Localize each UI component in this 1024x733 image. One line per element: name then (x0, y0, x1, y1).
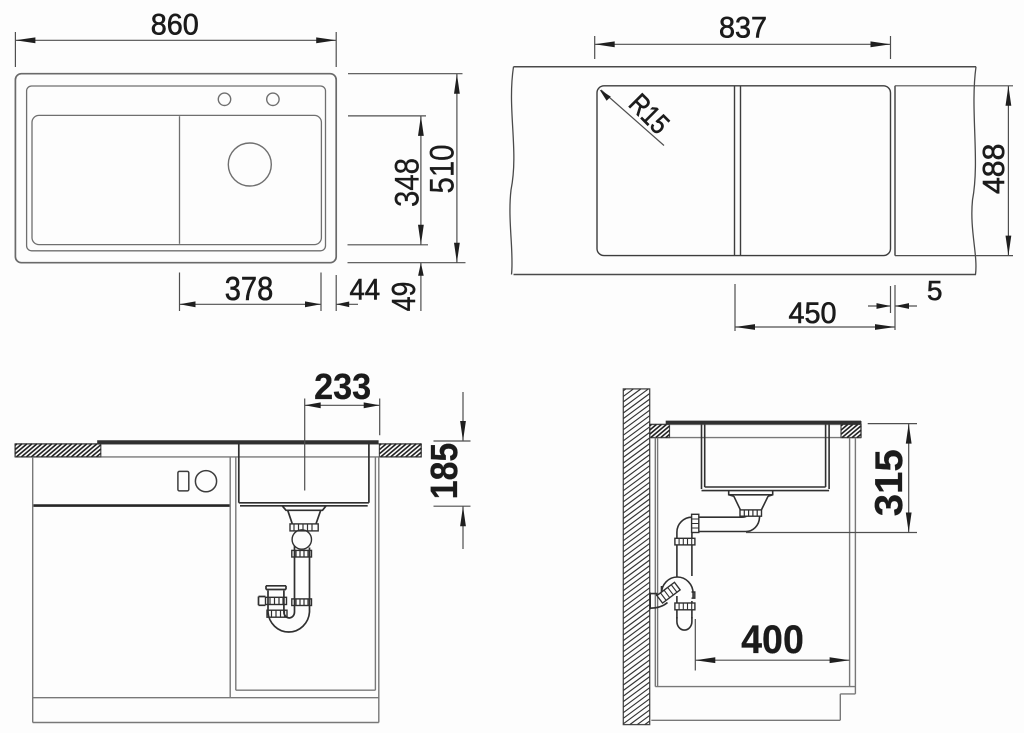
svg-text:450: 450 (788, 296, 836, 330)
svg-text:5: 5 (927, 275, 943, 306)
svg-text:378: 378 (225, 270, 273, 307)
svg-text:233: 233 (314, 367, 371, 407)
svg-text:49: 49 (386, 282, 422, 312)
svg-text:488: 488 (977, 144, 1011, 194)
svg-text:510: 510 (422, 144, 461, 193)
svg-text:44: 44 (349, 273, 380, 306)
svg-text:315: 315 (868, 449, 911, 516)
svg-text:185: 185 (422, 443, 465, 499)
svg-text:837: 837 (719, 11, 767, 45)
svg-text:R15: R15 (623, 88, 675, 140)
svg-text:400: 400 (741, 618, 804, 662)
svg-text:348: 348 (388, 158, 427, 207)
svg-text:860: 860 (151, 8, 199, 42)
